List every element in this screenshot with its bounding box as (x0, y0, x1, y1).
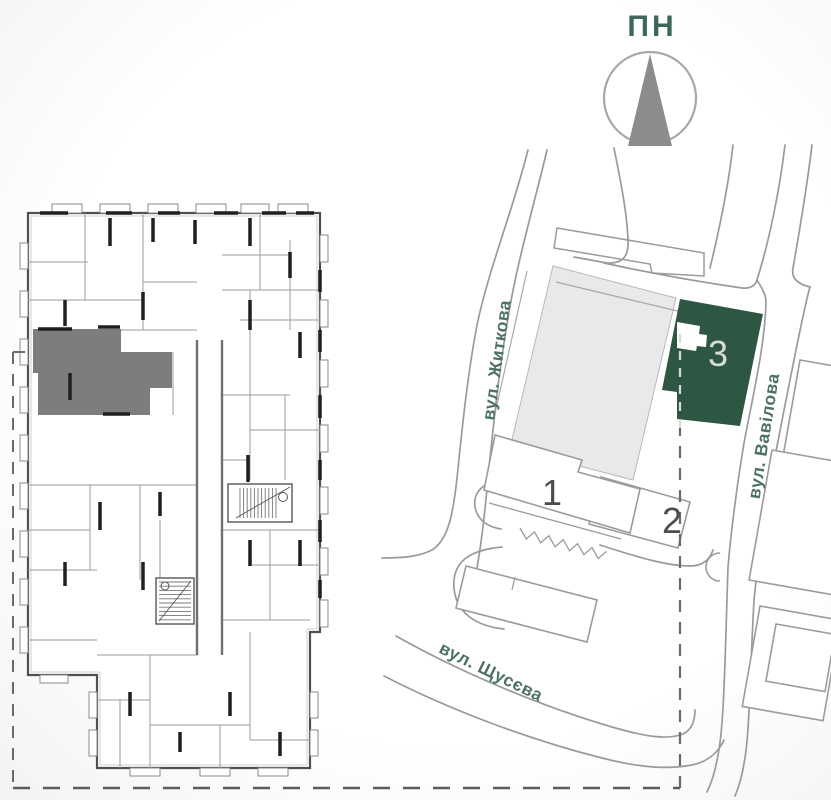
compass (604, 52, 696, 146)
stairwell-right (228, 484, 292, 522)
site-map-canvas: ПН вул. Житкова вул. Вавілова вул. Щусєв… (0, 0, 831, 800)
building-1-number: 1 (542, 472, 562, 514)
floor-plan (20, 204, 328, 776)
east-buildings (742, 360, 831, 721)
stairwell-central (156, 578, 194, 624)
southwest-building (456, 566, 597, 642)
corridor (198, 341, 221, 654)
building-2-number: 2 (662, 500, 682, 542)
north-label: ПН (611, 10, 693, 44)
plan-drawing (0, 0, 831, 800)
culdesac-bulb (706, 553, 720, 581)
building-3-number: 3 (708, 333, 728, 375)
building-1-sawtooth (520, 528, 606, 559)
boundary-left (13, 352, 26, 788)
